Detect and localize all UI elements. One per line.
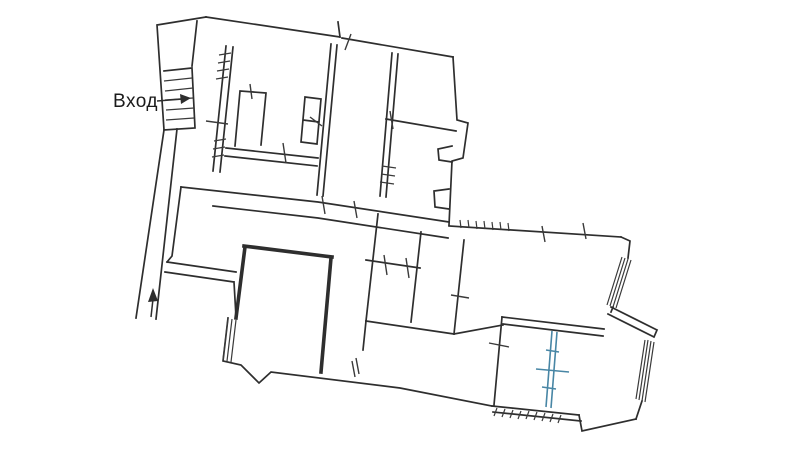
floorplan-svg: Вход <box>0 0 800 450</box>
upper-wing-partition <box>386 119 456 131</box>
bottom-right-step-wall <box>579 415 636 431</box>
corridor-walls <box>136 129 177 319</box>
mid-vertical-wall-b <box>411 232 421 322</box>
window-hatches <box>212 53 654 423</box>
stair-side-wall <box>213 46 233 172</box>
mid-room-bottom-wall <box>366 321 503 334</box>
center-vertical-wall <box>317 44 337 196</box>
right-wing-niches <box>434 146 452 209</box>
stair-arrow-head-icon <box>180 94 191 104</box>
mid-horizontal-wall <box>366 260 420 268</box>
stair-direction-arrow <box>157 99 183 101</box>
central-corridor-top-wall <box>181 187 449 222</box>
corridor-arrow-head-icon <box>148 288 158 302</box>
dark-wall-vertical <box>236 247 245 318</box>
corridor-direction-arrow <box>151 299 153 317</box>
mid-vertical-wall-c <box>454 240 464 334</box>
upper-left-room-bottom-wall <box>225 148 318 166</box>
lower-divider-stub <box>363 321 366 350</box>
closet-walls <box>301 97 321 144</box>
right-corner-wall <box>621 237 630 258</box>
window-right-lower <box>636 340 654 402</box>
thick-walls <box>236 246 332 372</box>
blue-partition <box>536 331 569 408</box>
right-step-wall <box>608 307 657 337</box>
bottom-right-room-left-wall <box>494 317 502 405</box>
corridor-connector-walls <box>165 187 236 317</box>
bottom-right-room-top-wall <box>502 317 604 336</box>
floorplan-walls <box>136 17 657 431</box>
mid-vertical-wall-a <box>366 214 378 321</box>
entrance-label: Вход <box>113 91 158 112</box>
bottom-exterior-wall <box>223 318 492 406</box>
small-room-walls <box>235 91 266 146</box>
lower-right-corner-wall <box>636 401 642 419</box>
central-corridor-bottom-wall <box>213 206 448 238</box>
blue-partition-cross <box>536 369 569 372</box>
staircase-enclosure <box>157 17 206 130</box>
upper-right-wall <box>449 226 621 237</box>
right-wing-exterior-wall <box>449 57 468 225</box>
floorplan-canvas: Вход <box>0 0 800 450</box>
dark-wall-lower <box>321 258 331 372</box>
dark-wall-horizontal <box>244 246 332 257</box>
window-right-upper <box>607 257 631 308</box>
window-left <box>223 318 236 362</box>
